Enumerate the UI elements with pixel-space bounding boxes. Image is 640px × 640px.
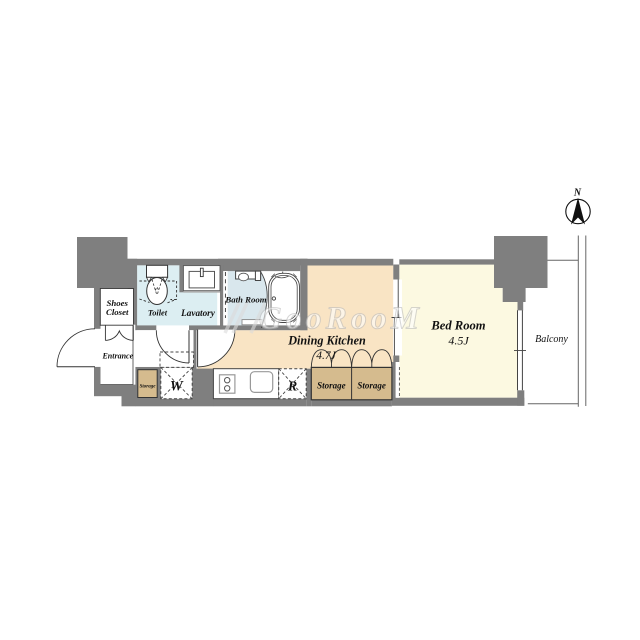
svg-text:Storage: Storage — [317, 381, 346, 391]
svg-text:4.5J: 4.5J — [448, 334, 469, 348]
svg-text:Storage: Storage — [357, 381, 386, 391]
svg-text:W: W — [170, 379, 184, 395]
svg-text:Balcony: Balcony — [535, 334, 568, 345]
svg-text:Closet: Closet — [106, 307, 129, 317]
svg-text:Lavatory: Lavatory — [180, 308, 216, 318]
svg-text:Bath Room: Bath Room — [224, 295, 266, 305]
svg-text:R: R — [287, 380, 297, 395]
svg-text:N: N — [573, 188, 582, 199]
svg-text:Toilet: Toilet — [148, 309, 168, 318]
svg-text:Bed Room: Bed Room — [430, 319, 485, 333]
svg-text:GooRooM: GooRooM — [259, 301, 423, 336]
svg-text:Storage: Storage — [140, 385, 157, 390]
svg-text:4.7J: 4.7J — [316, 350, 336, 362]
svg-text:Dining Kitchen: Dining Kitchen — [287, 334, 366, 348]
svg-text:Entrance: Entrance — [101, 352, 133, 361]
